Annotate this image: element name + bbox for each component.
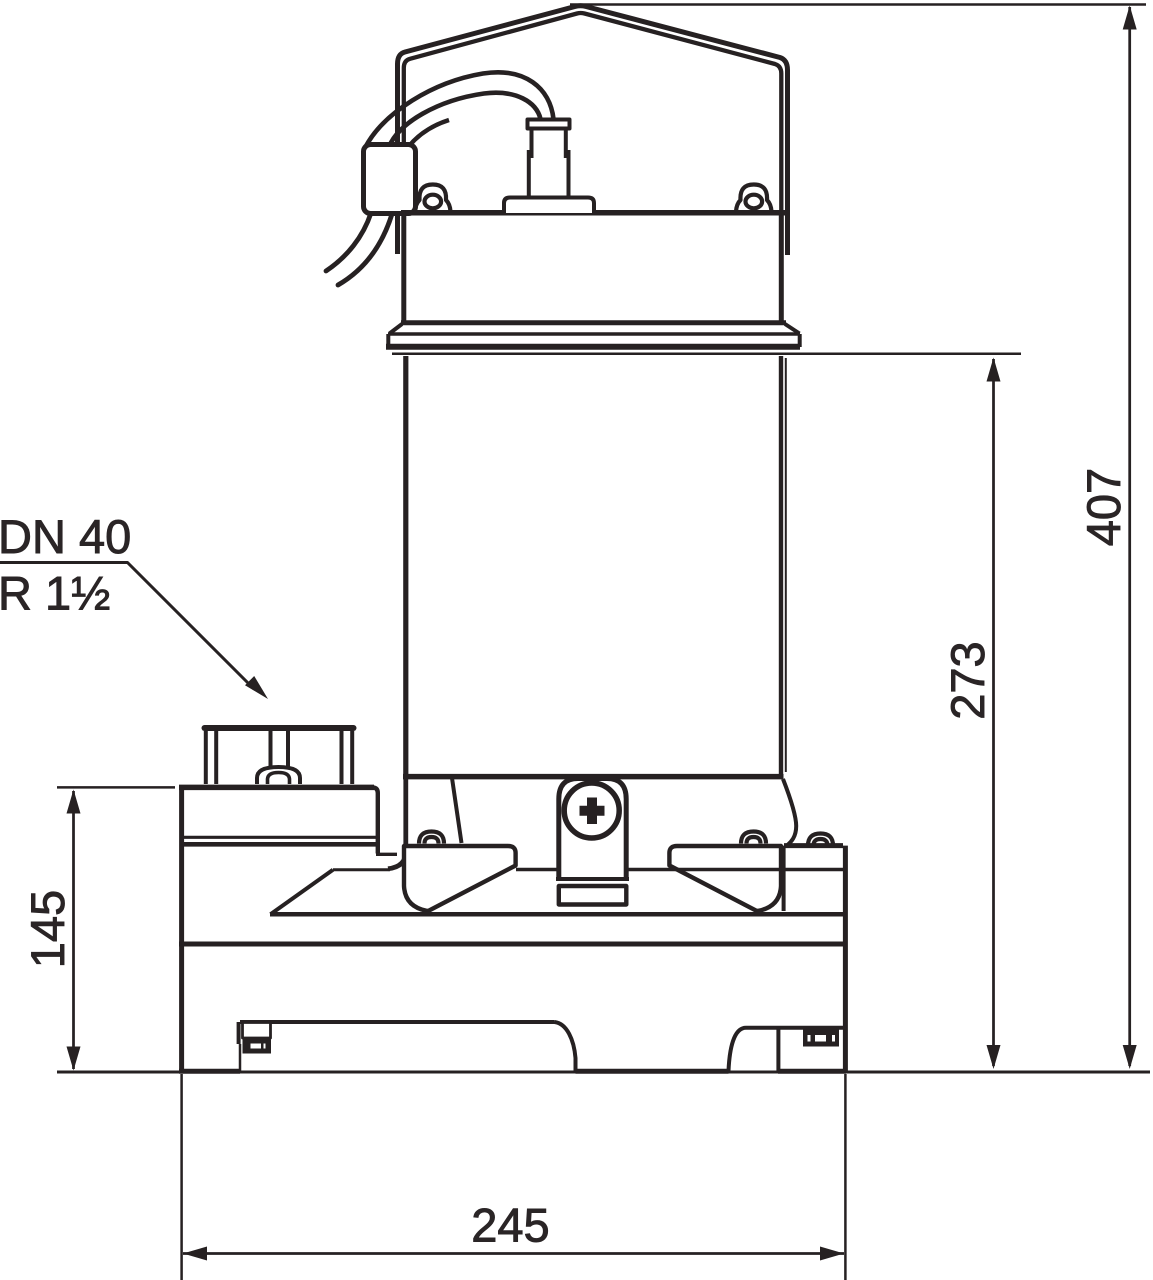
svg-text:DN 40: DN 40: [0, 510, 131, 563]
svg-text:R 1½: R 1½: [0, 567, 110, 620]
svg-text:407: 407: [1077, 468, 1130, 546]
svg-text:273: 273: [941, 641, 994, 719]
svg-text:245: 245: [471, 1199, 549, 1252]
svg-text:145: 145: [21, 890, 74, 968]
